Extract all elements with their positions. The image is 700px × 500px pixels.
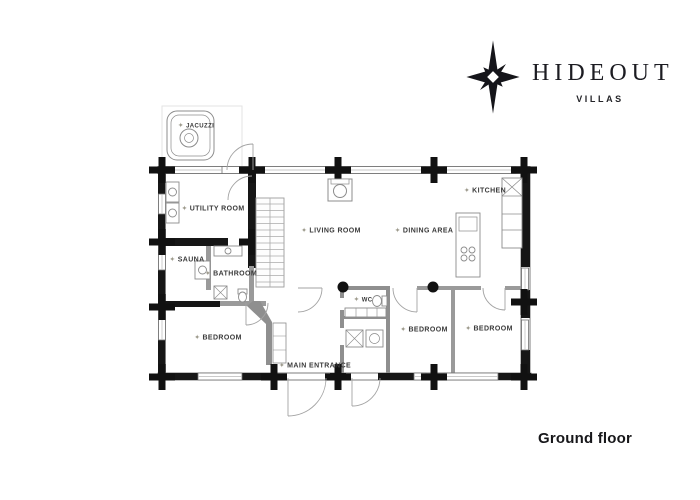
label-star-icon: ✦	[279, 363, 285, 370]
room-name: KITCHEN	[472, 188, 506, 195]
room-label-bathroom: ✦ BATHROOM	[205, 271, 257, 278]
room-name: WC	[362, 297, 373, 303]
label-star-icon: ✦	[205, 271, 211, 278]
room-name: BEDROOM	[202, 335, 241, 342]
label-star-icon: ✦	[400, 327, 406, 334]
room-name: MAIN ENTRANCE	[287, 363, 351, 370]
room-label-bedroom-3: ✦ BEDROOM	[465, 326, 513, 333]
room-label-dining-area: ✦ DINING AREA	[395, 228, 454, 235]
room-name: SAUNA	[178, 257, 205, 264]
fireplace-stove	[328, 179, 352, 201]
room-name: JACUZZI	[186, 123, 214, 129]
room-label-wc: ✦ WC	[353, 297, 372, 304]
label-star-icon: ✦	[178, 123, 184, 130]
jacuzzi-tub	[167, 111, 214, 160]
room-label-living-room: ✦ LIVING ROOM	[301, 228, 361, 235]
room-label-bedroom-2: ✦ BEDROOM	[400, 327, 448, 334]
room-name: LIVING ROOM	[309, 228, 360, 235]
label-star-icon: ✦	[194, 335, 200, 342]
room-name: BEDROOM	[408, 327, 447, 334]
room-label-bedroom-1: ✦ BEDROOM	[194, 335, 242, 342]
label-star-icon: ✦	[181, 206, 187, 213]
room-label-kitchen: ✦ KITCHEN	[464, 188, 506, 195]
room-name: BATHROOM	[213, 271, 257, 278]
brand-tagline: VILLAS	[532, 94, 668, 104]
label-star-icon: ✦	[465, 326, 471, 333]
floor-name-label: Ground floor	[505, 430, 665, 447]
label-star-icon: ✦	[395, 228, 401, 235]
brand-name: HIDEOUT	[532, 60, 668, 87]
floorplan-page: ✦ JACUZZI ✦ UTILITY ROOM ✦ SAUNA ✦ BATHR…	[0, 0, 700, 500]
staircase	[256, 198, 284, 287]
brand-logo: HIDEOUT VILLAS	[452, 36, 667, 116]
room-label-main-entrance: ✦ MAIN ENTRANCE	[279, 363, 351, 370]
utility-appliances	[166, 182, 179, 223]
room-label-jacuzzi: ✦ JACUZZI	[178, 123, 214, 130]
label-star-icon: ✦	[169, 257, 175, 264]
hall-closet	[273, 323, 286, 363]
room-name: DINING AREA	[403, 228, 453, 235]
compass-star-icon	[460, 38, 526, 116]
room-label-sauna: ✦ SAUNA	[169, 257, 204, 264]
room-name: UTILITY ROOM	[190, 206, 245, 213]
room-name: BEDROOM	[473, 326, 512, 333]
room-label-utility-room: ✦ UTILITY ROOM	[181, 206, 244, 213]
label-star-icon: ✦	[353, 297, 359, 304]
label-star-icon: ✦	[464, 188, 470, 195]
label-star-icon: ✦	[301, 228, 307, 235]
